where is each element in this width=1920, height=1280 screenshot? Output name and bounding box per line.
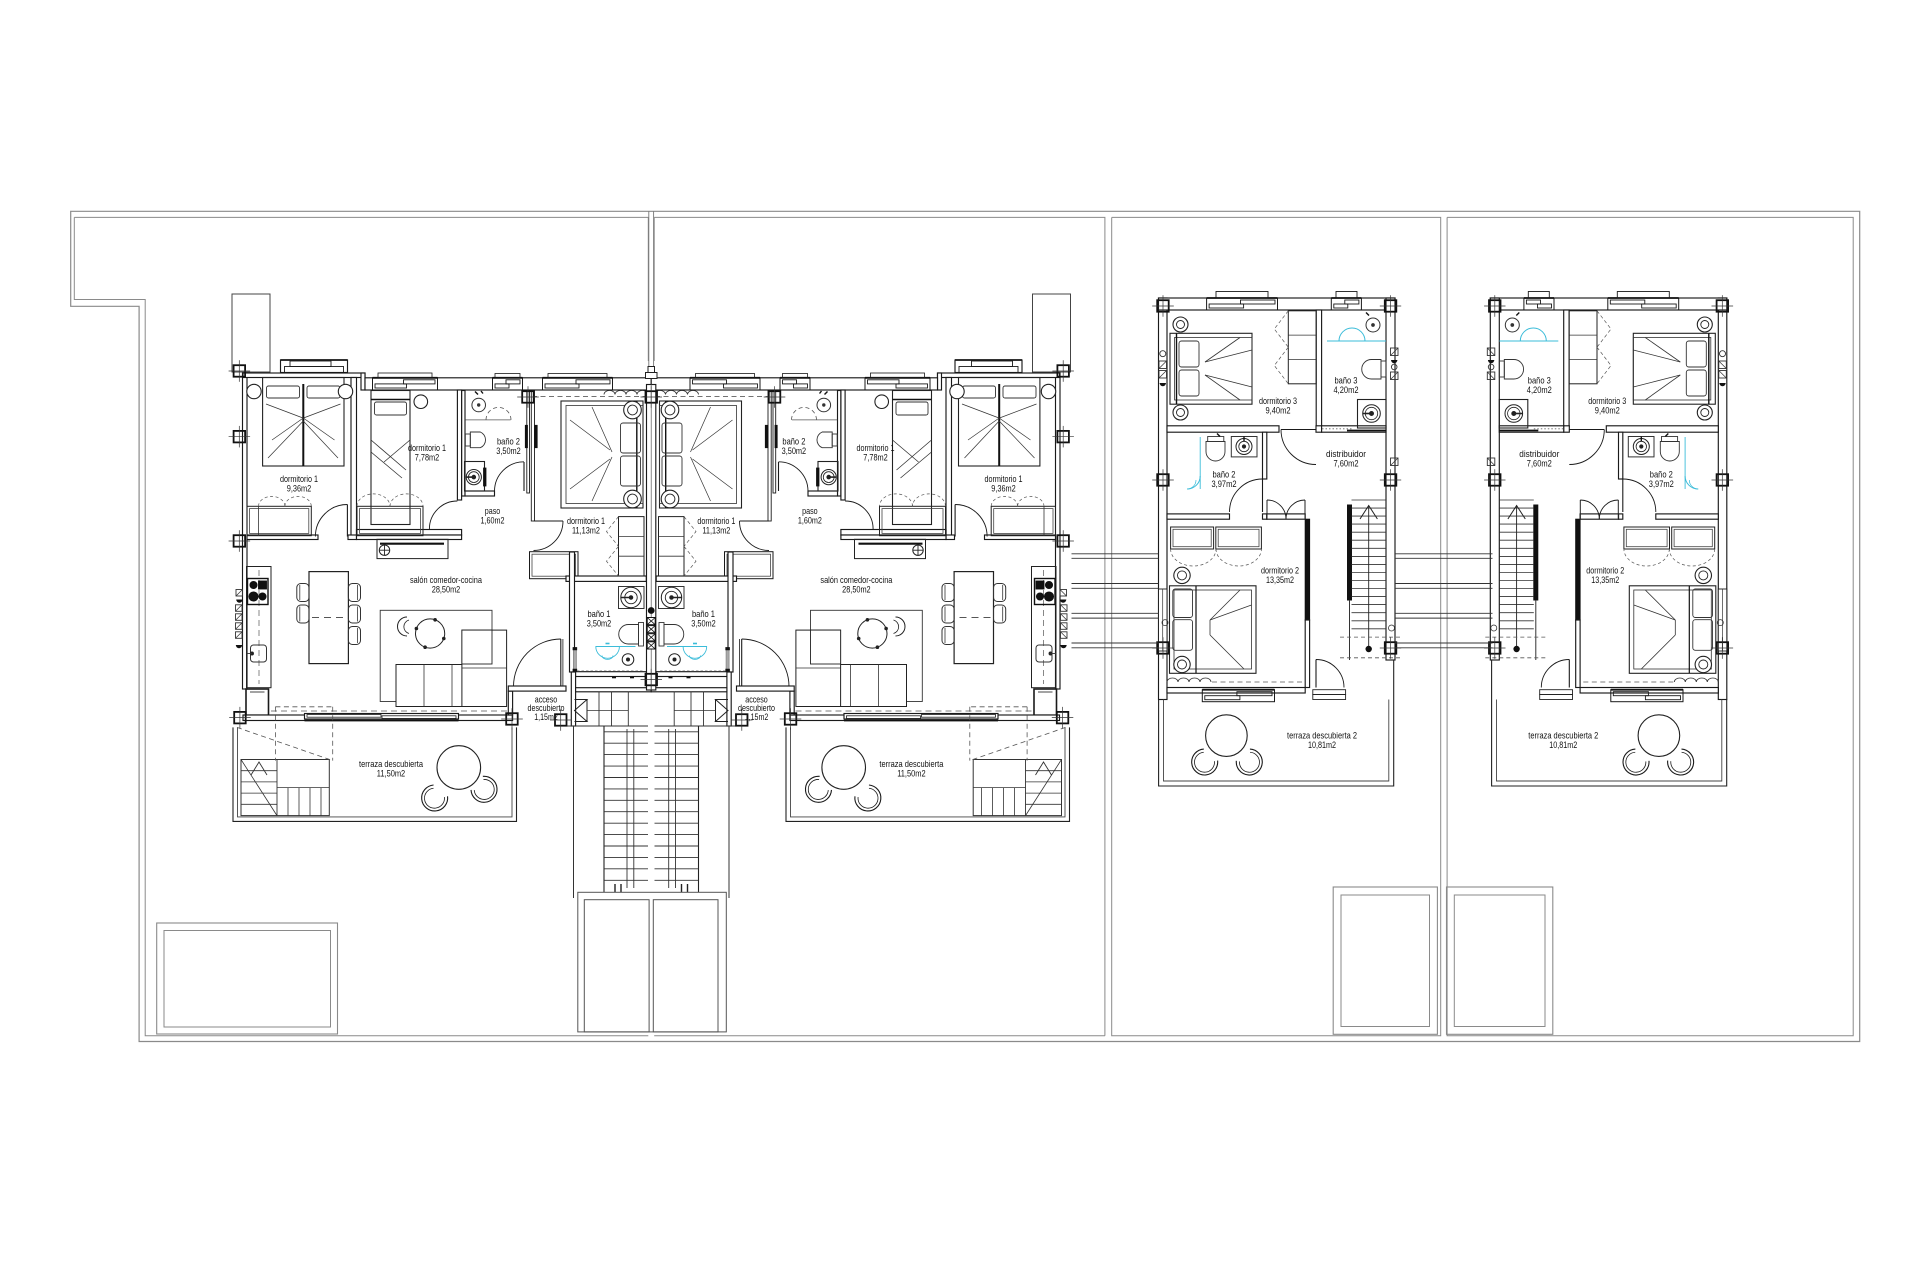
svg-text:paso: paso: [802, 506, 818, 516]
svg-text:baño 2: baño 2: [497, 437, 520, 447]
svg-text:baño 3: baño 3: [1335, 376, 1358, 386]
svg-text:4,20m2: 4,20m2: [1334, 385, 1359, 395]
svg-text:baño 1: baño 1: [588, 609, 611, 619]
svg-text:salón comedor-cocina: salón comedor-cocina: [410, 575, 483, 585]
svg-text:7,78m2: 7,78m2: [863, 453, 888, 463]
svg-text:28,50m2: 28,50m2: [432, 585, 461, 595]
svg-text:3,50m2: 3,50m2: [496, 446, 521, 456]
svg-text:baño 3: baño 3: [1528, 376, 1551, 386]
svg-text:baño 2: baño 2: [1650, 470, 1673, 480]
svg-text:1,60m2: 1,60m2: [798, 516, 822, 526]
svg-text:10,81m2: 10,81m2: [1308, 740, 1336, 750]
svg-text:dormitorio 1: dormitorio 1: [408, 443, 446, 453]
svg-text:9,40m2: 9,40m2: [1266, 406, 1291, 416]
svg-text:dormitorio 2: dormitorio 2: [1261, 566, 1299, 576]
svg-text:salón comedor-cocina: salón comedor-cocina: [820, 575, 893, 585]
svg-text:3,50m2: 3,50m2: [782, 446, 807, 456]
svg-text:dormitorio 1: dormitorio 1: [857, 443, 895, 453]
svg-text:1,60m2: 1,60m2: [481, 516, 505, 526]
svg-text:11,13m2: 11,13m2: [572, 526, 600, 536]
svg-text:terraza descubierta 2: terraza descubierta 2: [1287, 731, 1357, 741]
svg-text:4,20m2: 4,20m2: [1527, 385, 1552, 395]
svg-text:1,15m2: 1,15m2: [745, 712, 769, 722]
svg-text:dormitorio 1: dormitorio 1: [280, 474, 318, 484]
svg-text:9,36m2: 9,36m2: [287, 484, 312, 494]
svg-text:3,97m2: 3,97m2: [1649, 479, 1674, 489]
svg-text:11,13m2: 11,13m2: [702, 526, 730, 536]
svg-text:dormitorio 3: dormitorio 3: [1259, 396, 1297, 406]
svg-text:28,50m2: 28,50m2: [842, 585, 871, 595]
svg-text:11,50m2: 11,50m2: [897, 769, 925, 779]
svg-text:dormitorio 2: dormitorio 2: [1586, 566, 1624, 576]
svg-text:terraza descubierta 2: terraza descubierta 2: [1528, 731, 1598, 741]
svg-text:baño 2: baño 2: [782, 437, 805, 447]
svg-text:3,50m2: 3,50m2: [587, 619, 612, 629]
svg-text:baño 2: baño 2: [1213, 470, 1236, 480]
svg-text:distribuidor: distribuidor: [1326, 449, 1366, 459]
svg-text:baño 1: baño 1: [692, 609, 715, 619]
svg-text:9,40m2: 9,40m2: [1595, 406, 1620, 416]
svg-text:paso: paso: [485, 506, 501, 516]
svg-text:9,36m2: 9,36m2: [991, 484, 1016, 494]
svg-text:dormitorio 1: dormitorio 1: [567, 516, 605, 526]
svg-text:terraza descubierta: terraza descubierta: [879, 759, 944, 769]
svg-text:11,50m2: 11,50m2: [377, 769, 405, 779]
svg-text:terraza descubierta: terraza descubierta: [359, 759, 424, 769]
svg-text:dormitorio 1: dormitorio 1: [985, 474, 1023, 484]
svg-text:10,81m2: 10,81m2: [1549, 740, 1577, 750]
svg-text:3,97m2: 3,97m2: [1212, 479, 1237, 489]
svg-text:3,50m2: 3,50m2: [691, 619, 716, 629]
svg-text:distribuidor: distribuidor: [1519, 449, 1559, 459]
svg-text:13,35m2: 13,35m2: [1591, 575, 1619, 585]
svg-text:7,60m2: 7,60m2: [1527, 459, 1552, 469]
svg-text:7,60m2: 7,60m2: [1334, 459, 1359, 469]
svg-text:7,78m2: 7,78m2: [415, 453, 440, 463]
svg-text:13,35m2: 13,35m2: [1266, 575, 1294, 585]
svg-text:dormitorio 3: dormitorio 3: [1588, 396, 1626, 406]
svg-text:dormitorio 1: dormitorio 1: [697, 516, 735, 526]
svg-text:1,15m2: 1,15m2: [534, 712, 558, 722]
